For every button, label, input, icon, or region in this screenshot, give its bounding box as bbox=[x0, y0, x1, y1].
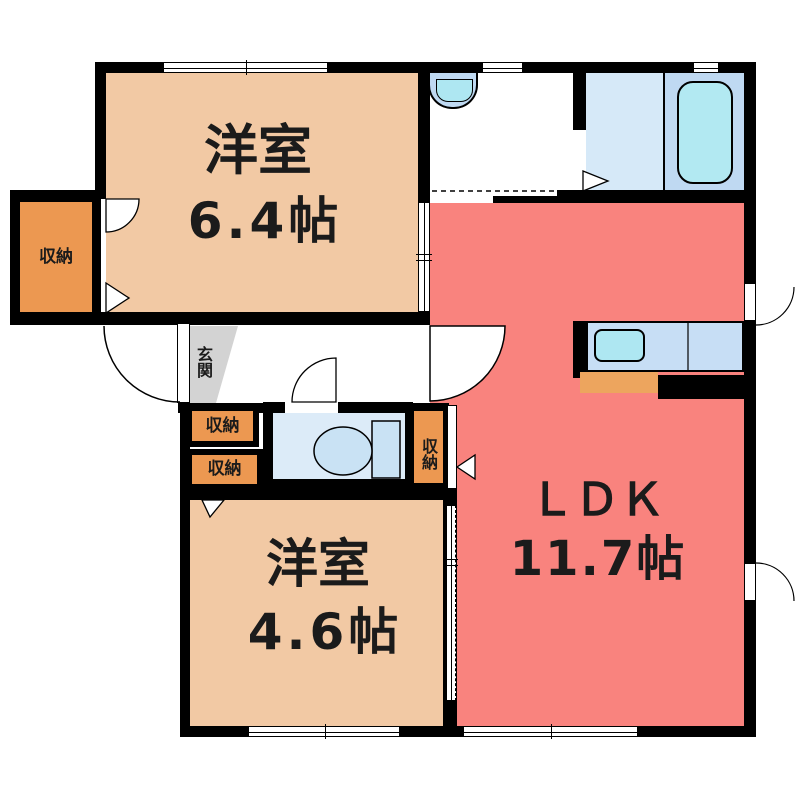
ldk-size: 11.7帖 bbox=[478, 535, 718, 583]
closet-hall-lower-label: 収納 bbox=[192, 461, 257, 478]
ldk-entry-door-swing bbox=[430, 326, 505, 401]
bedroom-64-label: 洋室 bbox=[158, 124, 358, 178]
closet-hall-upper-label: 収納 bbox=[192, 418, 253, 435]
bedroom-46-label: 洋室 bbox=[218, 539, 418, 591]
bedroom-64-size: 6.4帖 bbox=[145, 196, 385, 246]
floor-plan: 洋室 6.4帖 洋室 4.6帖 ＬＤＫ 11.7帖 玄関 収納 収納 収納 収納 bbox=[0, 0, 800, 800]
ldk-label: ＬＤＫ bbox=[477, 477, 717, 522]
ldk-lower-door-arc bbox=[756, 563, 794, 601]
closet-ldk-label: 収納 bbox=[420, 428, 436, 480]
toilet-icon bbox=[314, 421, 400, 478]
bathroom-door-arrow bbox=[583, 171, 608, 191]
toilet-door-swing bbox=[292, 358, 336, 402]
closet-ldk-door-arrow bbox=[457, 455, 475, 479]
closet-left-label: 収納 bbox=[20, 249, 92, 266]
bedroom-46-size: 4.6帖 bbox=[205, 607, 445, 657]
ldk-upper-door-arc bbox=[756, 287, 794, 325]
closet-left-door-swing bbox=[106, 199, 139, 313]
entrance-label: 玄関 bbox=[195, 339, 211, 385]
symbol-overlay bbox=[0, 0, 800, 800]
bedroom46-door-arrow bbox=[202, 500, 224, 517]
front-door-arc bbox=[104, 326, 180, 402]
